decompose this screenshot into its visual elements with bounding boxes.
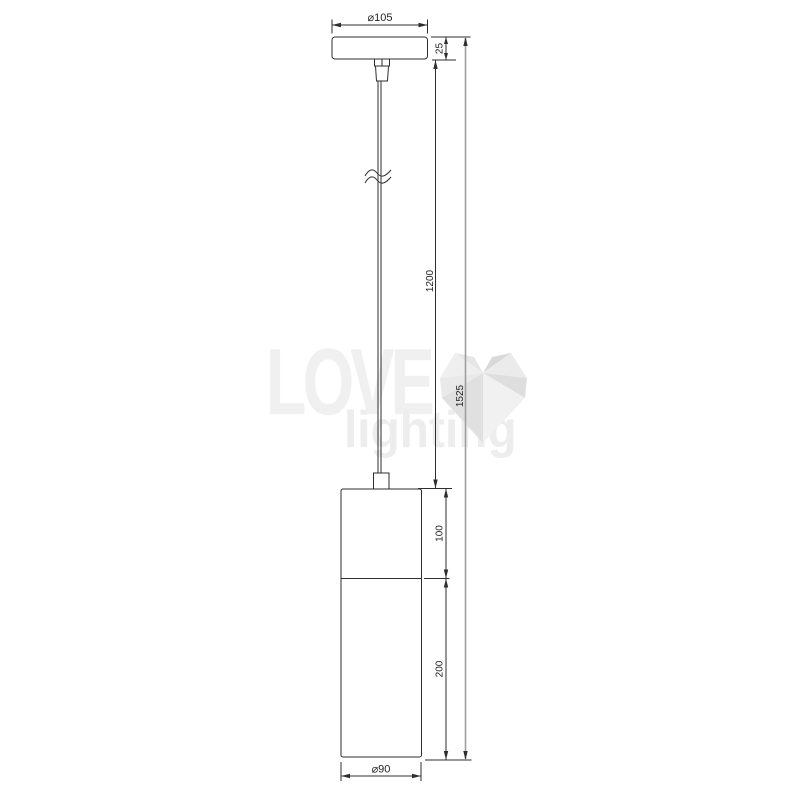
drawing-svg: ⌀105 25 1200 100	[0, 0, 800, 800]
body-lower-section-label: 200	[435, 660, 446, 677]
body-diameter-dimension: ⌀90	[341, 762, 421, 781]
overall-height-label: 1525	[455, 384, 466, 407]
body-upper-section-label: 100	[435, 525, 446, 542]
canopy-stem	[375, 59, 390, 81]
body-diameter-label: ⌀90	[372, 764, 391, 776]
overall-height-dimension: 1525	[455, 37, 468, 760]
canopy-diameter-dimension: ⌀105	[332, 12, 428, 34]
ceiling-canopy	[332, 37, 428, 59]
body-upper-section-dimension: 100	[418, 489, 452, 579]
body-lower-section-dimension: 200	[425, 579, 472, 761]
canopy-height-label: 25	[435, 43, 446, 55]
lamp-body	[341, 489, 422, 757]
lamp-socket	[374, 473, 390, 489]
canopy-diameter-label: ⌀105	[368, 12, 393, 24]
cord-length-label: 1200	[425, 269, 436, 292]
suspension-cable	[365, 81, 391, 473]
canopy-height-dimension: 25	[431, 37, 471, 60]
pendant-lamp-technical-drawing: LOVE lighting	[0, 0, 800, 800]
cord-length-dimension: 1200	[425, 60, 438, 489]
